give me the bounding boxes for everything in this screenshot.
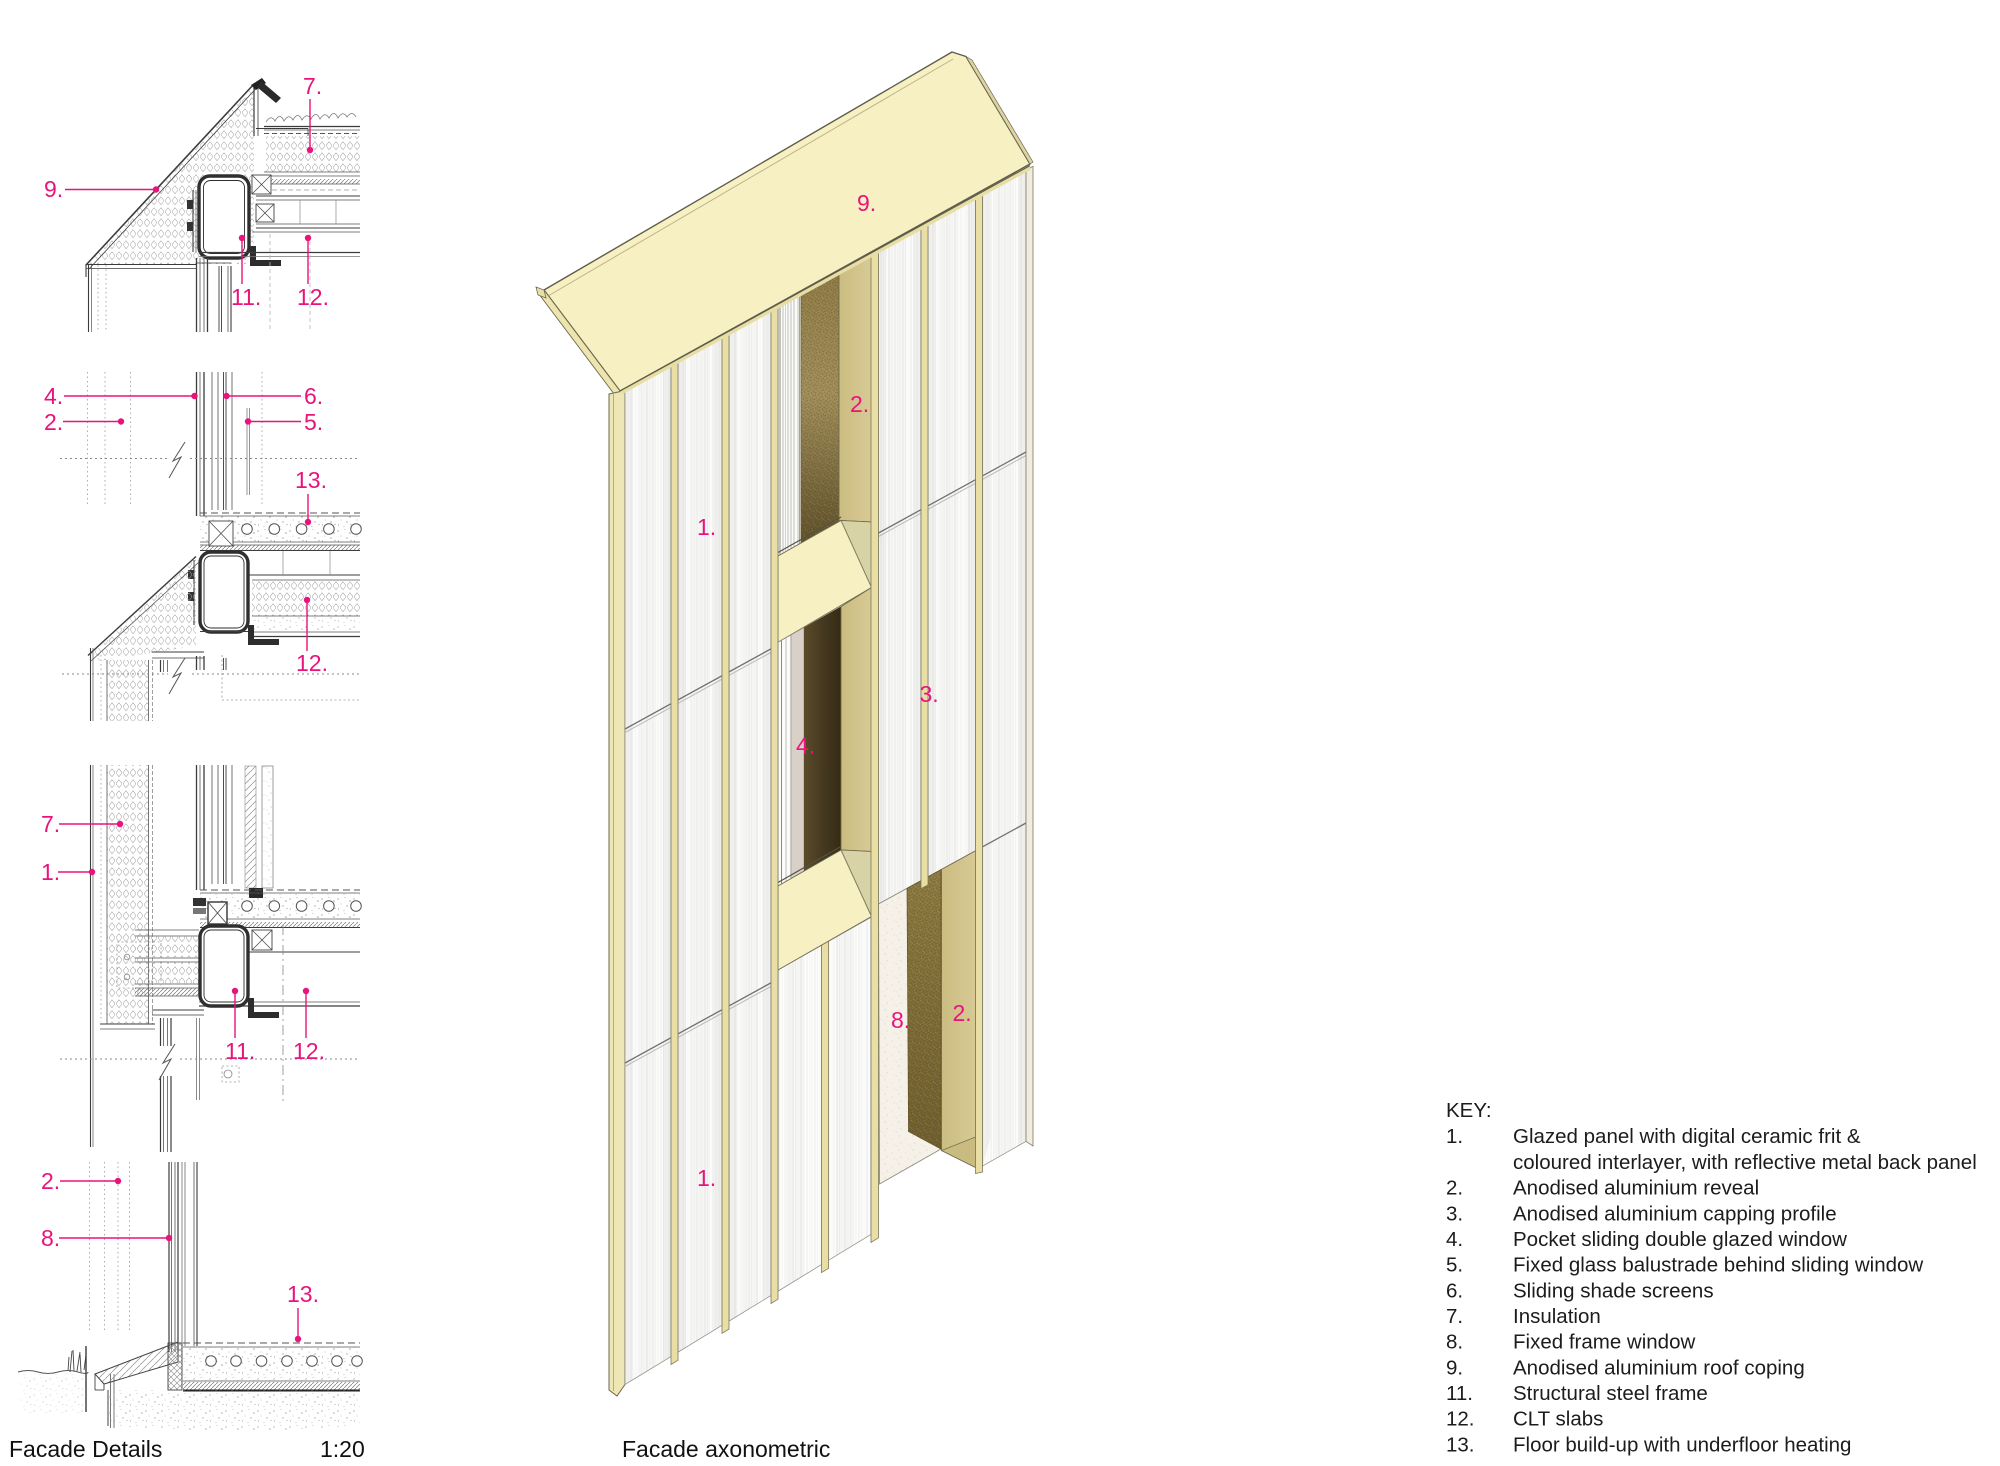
svg-text:13.: 13. [295,467,327,493]
svg-text:13.: 13. [287,1281,319,1307]
svg-text:7.: 7. [1446,1305,1463,1328]
svg-text:12.: 12. [1446,1408,1475,1431]
svg-text:Facade axonometric: Facade axonometric [622,1436,830,1462]
svg-text:Structural steel frame: Structural steel frame [1513,1382,1708,1405]
svg-text:coloured interlayer, with refl: coloured interlayer, with reflective met… [1513,1151,1977,1174]
svg-text:12.: 12. [293,1038,325,1064]
svg-text:1.: 1. [41,859,60,885]
svg-text:5.: 5. [304,409,323,435]
svg-text:12.: 12. [297,284,329,310]
svg-text:11.: 11. [225,1038,255,1064]
svg-text:4.: 4. [796,733,815,759]
svg-text:Insulation: Insulation [1513,1305,1601,1328]
svg-text:3.: 3. [1446,1202,1463,1225]
svg-text:5.: 5. [1446,1254,1463,1277]
svg-text:1.: 1. [697,1165,716,1191]
svg-text:Pocket sliding double glazed w: Pocket sliding double glazed window [1513,1228,1847,1251]
svg-text:1.: 1. [1446,1125,1463,1148]
svg-text:Glazed panel with digital cera: Glazed panel with digital ceramic frit & [1513,1125,1861,1148]
svg-text:Anodised aluminium reveal: Anodised aluminium reveal [1513,1177,1759,1200]
svg-text:6.: 6. [304,383,323,409]
svg-text:9.: 9. [857,190,876,216]
svg-text:8.: 8. [891,1007,910,1033]
svg-text:6.: 6. [1446,1279,1463,1302]
svg-text:3.: 3. [920,681,939,707]
svg-text:8.: 8. [1446,1331,1463,1354]
svg-text:11.: 11. [1446,1382,1473,1405]
svg-text:Fixed glass balustrade behind: Fixed glass balustrade behind sliding wi… [1513,1254,1923,1277]
svg-text:2.: 2. [953,1000,972,1026]
svg-text:Anodised aluminium roof coping: Anodised aluminium roof coping [1513,1356,1805,1379]
svg-text:4.: 4. [1446,1228,1463,1251]
svg-text:2.: 2. [1446,1177,1463,1200]
svg-text:Floor build-up with underfloor: Floor build-up with underfloor heating [1513,1433,1851,1456]
svg-text:1:20: 1:20 [320,1436,365,1462]
svg-text:Anodised aluminium capping pro: Anodised aluminium capping profile [1513,1202,1837,1225]
svg-text:KEY:: KEY: [1446,1099,1492,1122]
svg-text:CLT slabs: CLT slabs [1513,1408,1603,1431]
svg-text:Fixed frame window: Fixed frame window [1513,1331,1695,1354]
svg-text:2.: 2. [850,391,869,417]
svg-text:Facade Details: Facade Details [9,1436,162,1462]
svg-text:2.: 2. [44,409,63,435]
svg-text:9.: 9. [44,176,63,202]
svg-text:Sliding shade screens: Sliding shade screens [1513,1279,1714,1302]
svg-text:7.: 7. [303,73,322,99]
svg-text:2.: 2. [41,1168,60,1194]
svg-text:12.: 12. [296,650,328,676]
svg-text:7.: 7. [41,811,60,837]
svg-text:11.: 11. [231,284,261,310]
svg-text:13.: 13. [1446,1433,1475,1456]
svg-text:9.: 9. [1446,1356,1463,1379]
svg-text:8.: 8. [41,1225,60,1251]
svg-text:1.: 1. [697,514,716,540]
svg-text:4.: 4. [44,383,63,409]
